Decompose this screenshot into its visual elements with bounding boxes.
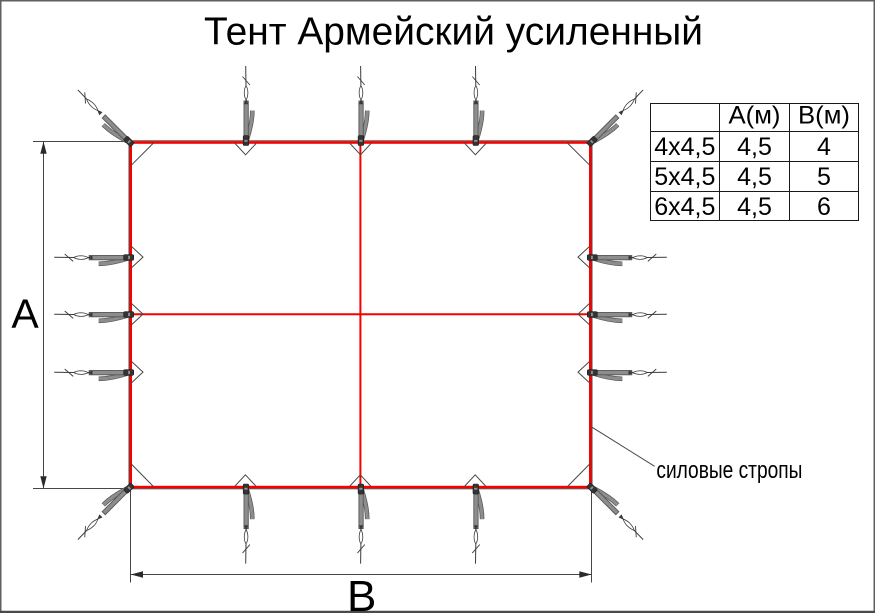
svg-text:6: 6 (817, 193, 831, 221)
svg-text:A: A (11, 291, 39, 337)
svg-text:4,5: 4,5 (737, 193, 772, 221)
svg-text:силовые стропы: силовые стропы (656, 457, 802, 484)
svg-text:B: B (347, 572, 376, 613)
svg-text:4x4,5: 4x4,5 (654, 133, 715, 161)
svg-text:5: 5 (817, 163, 831, 191)
svg-text:A(м): A(м) (729, 101, 781, 129)
svg-text:5x4,5: 5x4,5 (654, 163, 715, 191)
svg-text:4,5: 4,5 (737, 163, 772, 191)
svg-text:4,5: 4,5 (737, 133, 772, 161)
svg-text:Тент Армейский усиленный: Тент Армейский усиленный (204, 11, 703, 54)
svg-text:6x4,5: 6x4,5 (654, 193, 715, 221)
svg-text:4: 4 (817, 133, 831, 161)
svg-text:B(м): B(м) (798, 101, 850, 129)
